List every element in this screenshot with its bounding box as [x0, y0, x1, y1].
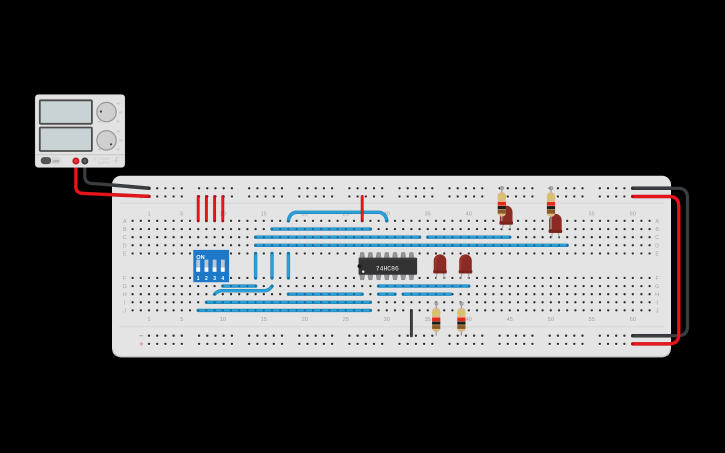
svg-text:50: 50	[548, 317, 554, 323]
svg-text:55: 55	[589, 211, 595, 217]
svg-text:1: 1	[147, 317, 150, 323]
svg-text:60: 60	[630, 317, 636, 323]
svg-text:2: 2	[205, 276, 208, 282]
svg-text:15: 15	[261, 211, 267, 217]
svg-text:B: B	[123, 227, 127, 233]
svg-text:40: 40	[466, 317, 472, 323]
svg-text:35: 35	[425, 317, 431, 323]
svg-text:55: 55	[589, 317, 595, 323]
svg-text:OFF: OFF	[53, 160, 60, 164]
svg-text:E: E	[655, 252, 659, 258]
svg-text:60: 60	[630, 211, 636, 217]
svg-text:B: B	[655, 227, 659, 233]
svg-text:C: C	[655, 235, 659, 241]
svg-text:SUPPLY: SUPPLY	[98, 161, 111, 165]
svg-text:F: F	[655, 276, 659, 282]
svg-text:15: 15	[261, 317, 267, 323]
svg-text:C: C	[123, 235, 127, 241]
svg-text:5: 5	[180, 317, 183, 323]
svg-text:G: G	[655, 284, 659, 290]
svg-text:1: 1	[197, 276, 200, 282]
svg-text:H: H	[123, 292, 127, 298]
svg-text:3: 3	[213, 276, 216, 282]
svg-text:J: J	[656, 308, 659, 314]
svg-text:D: D	[655, 243, 659, 249]
svg-text:G: G	[123, 284, 127, 290]
svg-text:10: 10	[220, 317, 226, 323]
svg-text:A: A	[123, 219, 127, 225]
svg-text:E: E	[123, 252, 127, 258]
svg-text:1: 1	[147, 211, 150, 217]
svg-text:A: A	[655, 219, 659, 225]
svg-text:30: 30	[384, 317, 390, 323]
svg-text:74HC86: 74HC86	[376, 266, 399, 273]
svg-text:H: H	[655, 292, 659, 298]
svg-text:35: 35	[425, 211, 431, 217]
svg-text:45: 45	[507, 317, 513, 323]
svg-text:5: 5	[180, 211, 183, 217]
svg-text:J: J	[123, 308, 126, 314]
svg-text:F: F	[123, 276, 127, 282]
svg-text:4: 4	[221, 276, 224, 282]
svg-text:25: 25	[343, 317, 349, 323]
svg-text:20: 20	[302, 317, 308, 323]
svg-text:40: 40	[466, 211, 472, 217]
svg-text:D: D	[123, 243, 127, 249]
